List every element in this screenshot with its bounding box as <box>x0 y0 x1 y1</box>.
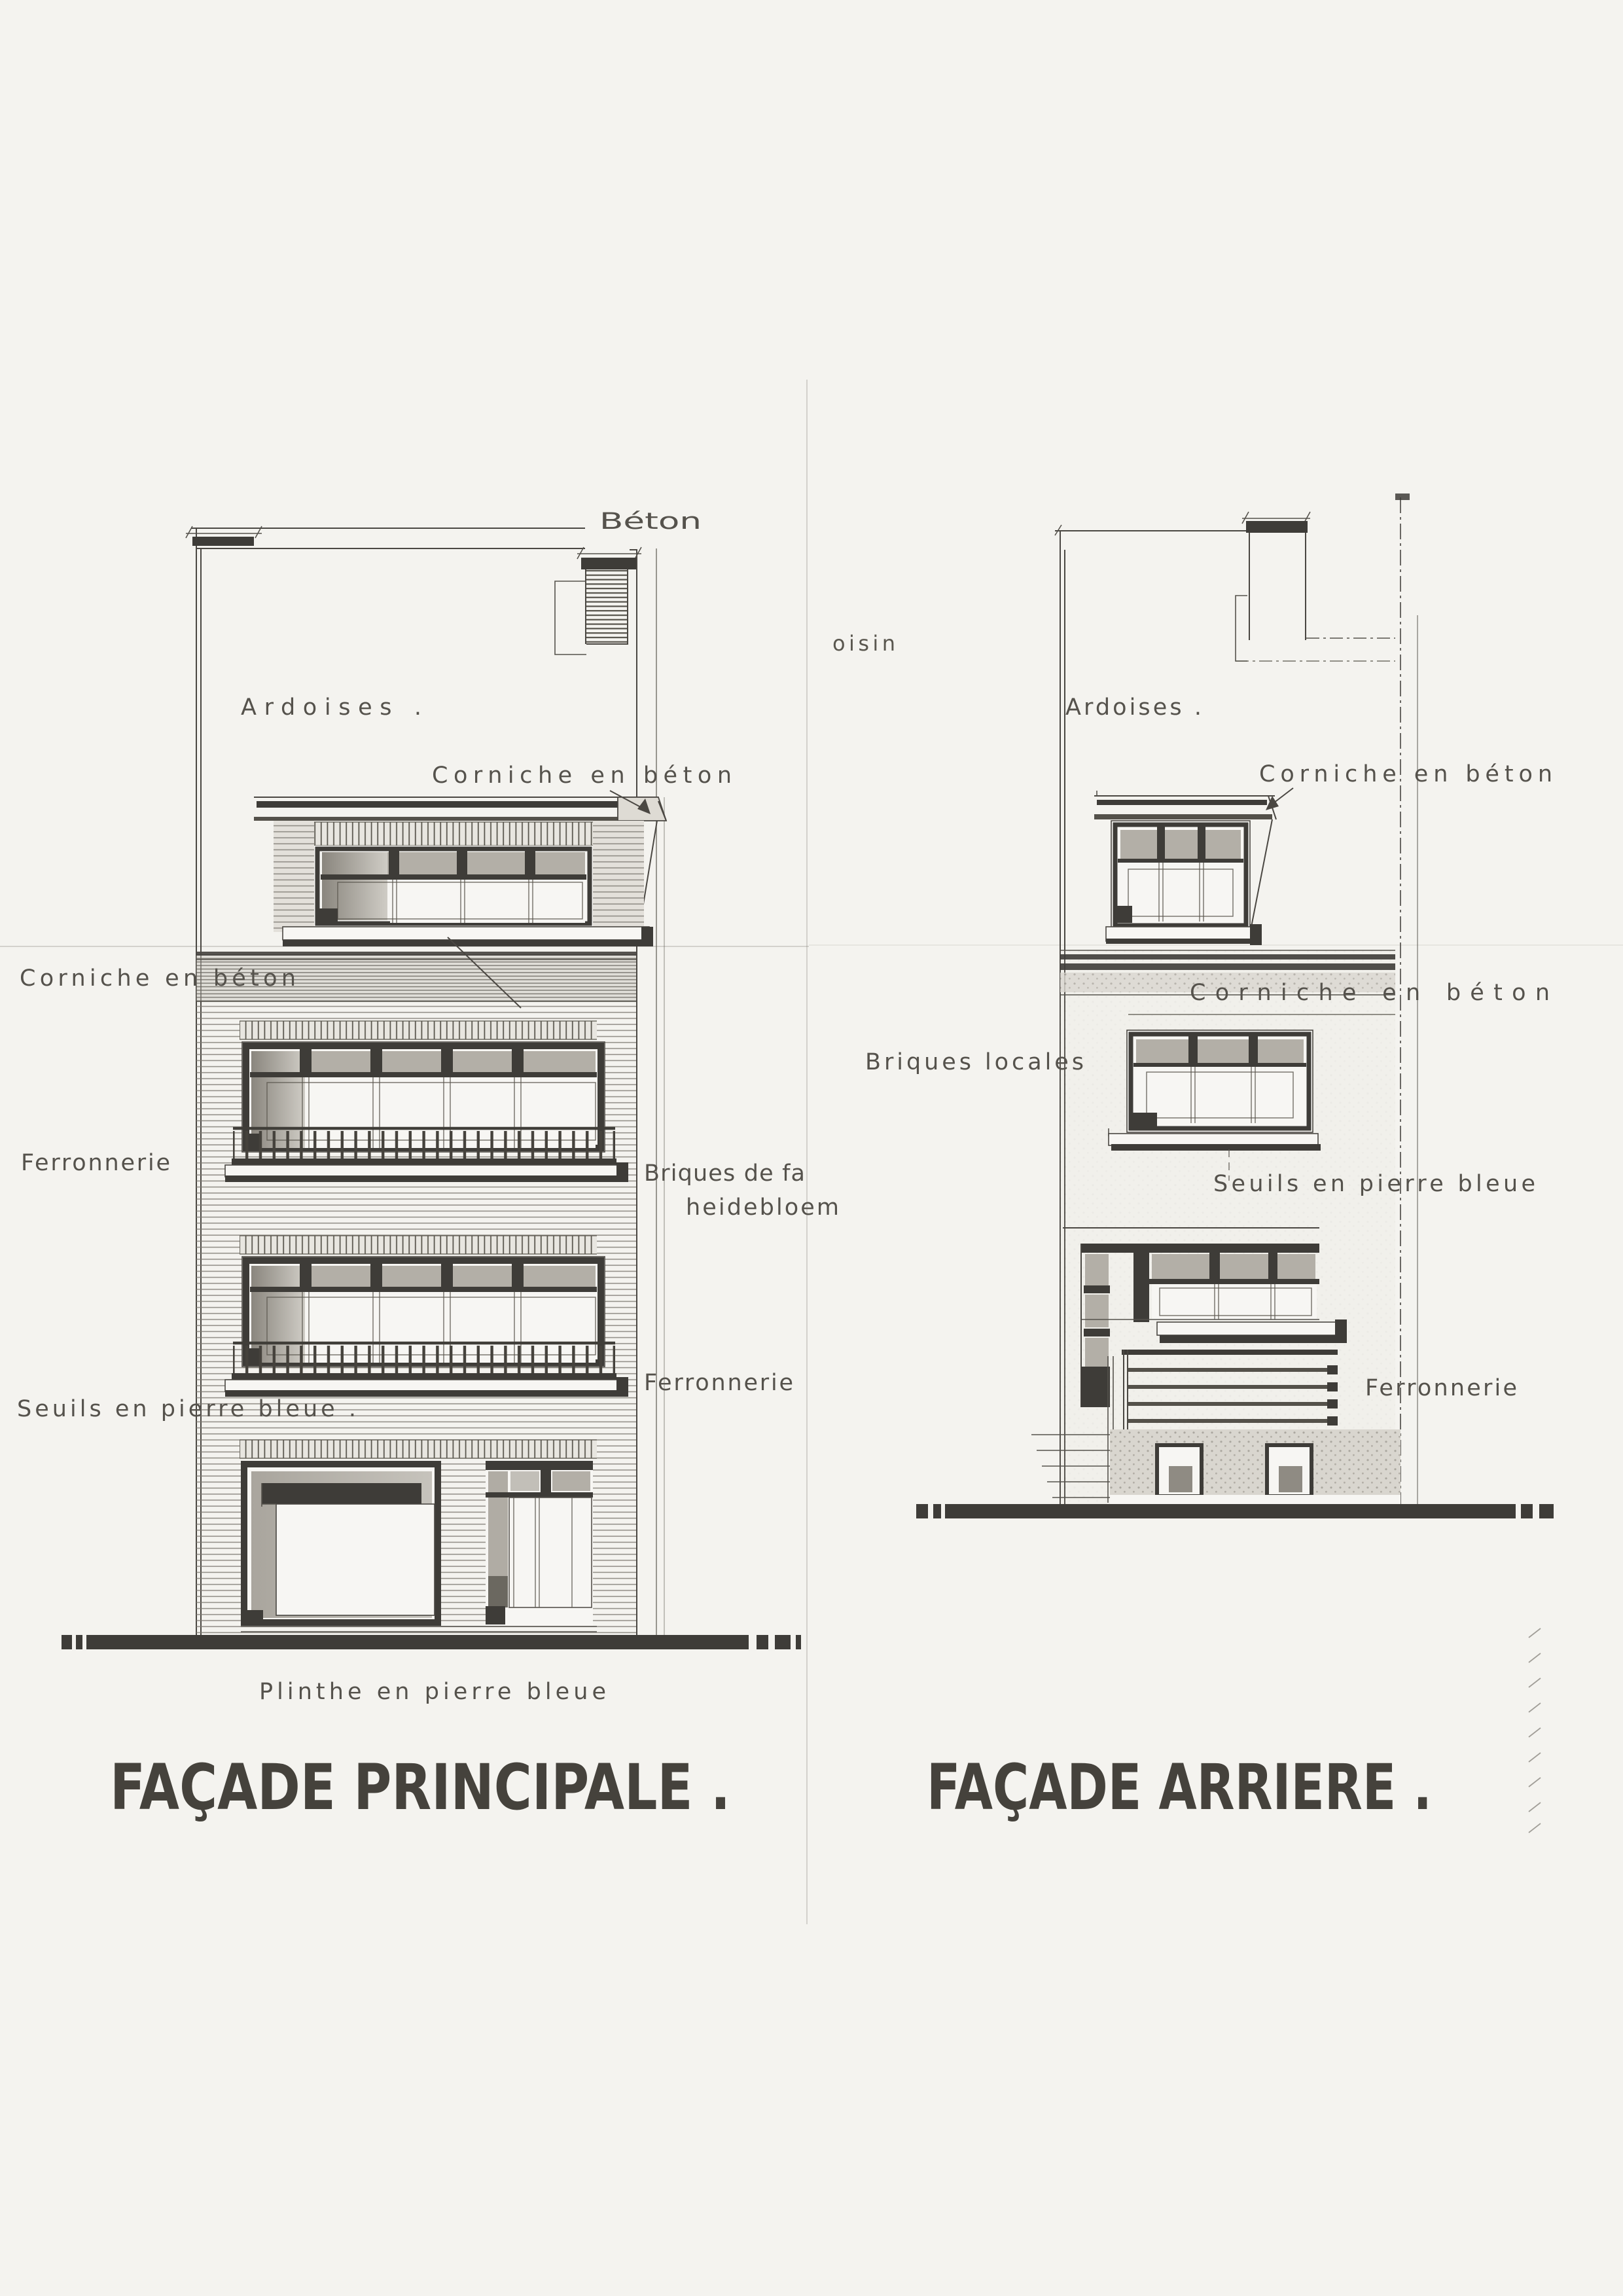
entrance-door <box>486 1461 593 1626</box>
label-ferronnerie-left: Ferronnerie <box>21 1150 170 1176</box>
rear-dormer <box>1094 791 1276 945</box>
principal-facade <box>62 526 801 1649</box>
rear-facade-title: FAÇADE ARRIERE . <box>927 1751 1432 1824</box>
label-briques-line2: heidebloem <box>686 1194 839 1221</box>
label-briques-line1: Briques de fa <box>644 1160 805 1187</box>
rear-ground-line <box>916 1504 1554 1518</box>
drawing-sheet: Béton Ardoises . Corniche en béton Corni… <box>0 0 1623 2296</box>
label-ferronnerie-rear: Ferronnerie <box>1365 1375 1517 1401</box>
label-ferronnerie-right: Ferronnerie <box>644 1370 793 1396</box>
principal-ground-floor <box>240 1440 597 1632</box>
rear-facade <box>916 493 1554 1833</box>
principal-ground-line <box>62 1635 801 1649</box>
garage-door <box>241 1461 441 1626</box>
principal-facade-title: FAÇADE PRINCIPALE . <box>110 1751 730 1824</box>
label-ardoises-right: Ardoises . <box>1065 694 1202 721</box>
label-corniche-mid-right: Corniche en béton <box>1190 980 1550 1006</box>
label-corniche-top-left: Corniche en béton <box>432 762 732 789</box>
principal-beton-chimney <box>555 547 641 655</box>
label-plinthe: Plinthe en pierre bleue <box>259 1679 606 1705</box>
rear-chimney <box>1236 512 1395 661</box>
principal-left-chimney <box>186 526 262 546</box>
label-corniche-side-left: Corniche en béton <box>20 965 296 992</box>
label-beton: Béton <box>599 509 702 535</box>
label-neighbour-fragment: oisin <box>832 631 895 656</box>
elevations-svg: Béton Ardoises . Corniche en béton Corni… <box>0 0 1623 2296</box>
principal-cornice-band <box>196 952 636 1001</box>
label-seuils-left: Seuils en pierre bleue . <box>17 1396 356 1422</box>
basement-window <box>1267 1445 1311 1496</box>
label-corniche-top-right: Corniche en béton <box>1259 761 1552 787</box>
label-ardoises-left: Ardoises . <box>241 694 421 721</box>
principal-dormer <box>254 797 666 946</box>
leader-arrow <box>1266 796 1279 810</box>
basement-window <box>1157 1445 1202 1496</box>
boundary-tick-marks <box>1529 1628 1541 1833</box>
label-briques-locales: Briques locales <box>865 1049 1084 1075</box>
